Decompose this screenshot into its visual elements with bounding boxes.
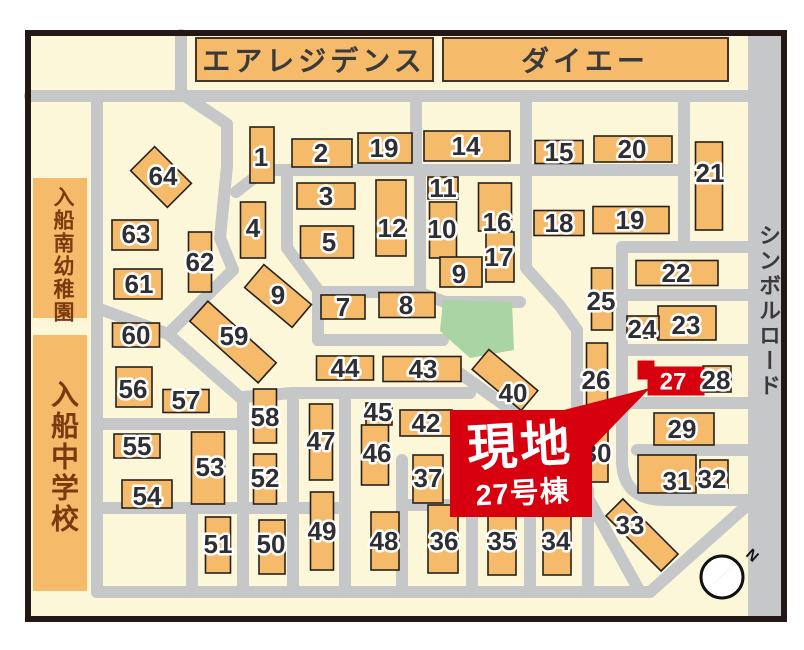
building-label-40: 40 xyxy=(499,378,528,408)
building-label-36: 36 xyxy=(430,526,459,556)
building-label-34: 34 xyxy=(542,526,571,556)
building-label-12: 12 xyxy=(378,213,407,243)
callout-line2: 27号棟 xyxy=(475,475,571,513)
building-label-58: 58 xyxy=(251,402,280,432)
building-label-56: 56 xyxy=(119,374,148,404)
building-label-49: 49 xyxy=(308,516,337,546)
compass-circle xyxy=(701,556,743,598)
building-label-10: 10 xyxy=(428,214,457,244)
building-label-1: 1 xyxy=(254,142,268,172)
building-label-32: 32 xyxy=(698,464,727,494)
building-label-44: 44 xyxy=(331,353,360,383)
building-label-16: 16 xyxy=(483,207,512,237)
building-label-9: 9 xyxy=(271,280,285,310)
building-label-47: 47 xyxy=(307,426,336,456)
building-label-59: 59 xyxy=(220,321,249,351)
building-label-35: 35 xyxy=(488,526,517,556)
building-label-37: 37 xyxy=(414,463,443,493)
kindergarten-label: 入船南幼稚園 xyxy=(47,186,77,324)
building-label-33: 33 xyxy=(616,510,645,540)
map-canvas: エアレジデンス ダイエー 121914152021312451110161791… xyxy=(0,0,804,650)
banner-air-residence-label: エアレジデンス xyxy=(202,45,425,77)
building-label-11: 11 xyxy=(429,173,457,203)
building-label-28: 28 xyxy=(702,365,731,395)
building-label-22: 22 xyxy=(662,258,691,288)
building-label-63: 63 xyxy=(122,219,151,249)
building-label-15: 15 xyxy=(545,137,574,167)
building-label-55: 55 xyxy=(123,431,152,461)
residential-map: エアレジデンス ダイエー 121914152021312451110161791… xyxy=(0,0,804,650)
building-label-14: 14 xyxy=(452,131,481,161)
building-label-26: 26 xyxy=(582,365,611,395)
building-label-2: 2 xyxy=(314,138,328,168)
building-label-52: 52 xyxy=(251,463,280,493)
building-label-4: 4 xyxy=(246,213,261,243)
building-label-5: 5 xyxy=(322,227,336,257)
building-label-61: 61 xyxy=(125,269,154,299)
school-label: 入船中学校 xyxy=(43,380,83,535)
building-label-18: 18 xyxy=(545,208,574,238)
building-label-23: 23 xyxy=(672,310,701,340)
building-label-20: 20 xyxy=(618,134,647,164)
building-label-48: 48 xyxy=(370,526,399,556)
building-label-42: 42 xyxy=(412,408,441,438)
banner-daiei-label: ダイエー xyxy=(521,45,649,77)
building-label-57: 57 xyxy=(172,385,201,415)
building-label-17: 17 xyxy=(485,242,514,272)
building-27-label: 27 xyxy=(660,369,687,396)
building-label-64: 64 xyxy=(149,161,178,191)
building-label-3: 3 xyxy=(319,181,333,211)
building-label-9: 9 xyxy=(452,259,466,289)
building-label-46: 46 xyxy=(363,438,392,468)
building-label-51: 51 xyxy=(204,529,233,559)
building-label-29: 29 xyxy=(668,414,697,444)
building-label-50: 50 xyxy=(257,529,286,559)
building-label-53: 53 xyxy=(196,452,225,482)
building-label-62: 62 xyxy=(186,247,215,277)
symbol-road-label: シンボルロード xyxy=(752,224,784,399)
building-label-7: 7 xyxy=(336,292,350,322)
building-label-43: 43 xyxy=(409,354,438,384)
building-label-25: 25 xyxy=(587,286,616,316)
building-label-19: 19 xyxy=(616,205,645,235)
building-label-54: 54 xyxy=(133,481,162,511)
building-label-21: 21 xyxy=(696,158,725,188)
building-label-60: 60 xyxy=(122,320,151,350)
building-label-8: 8 xyxy=(399,290,413,320)
building-label-31: 31 xyxy=(663,466,692,496)
building-label-45: 45 xyxy=(364,397,393,427)
callout-line1: 現地 xyxy=(466,415,575,476)
building-label-19: 19 xyxy=(370,133,399,163)
building-label-24: 24 xyxy=(628,314,657,344)
